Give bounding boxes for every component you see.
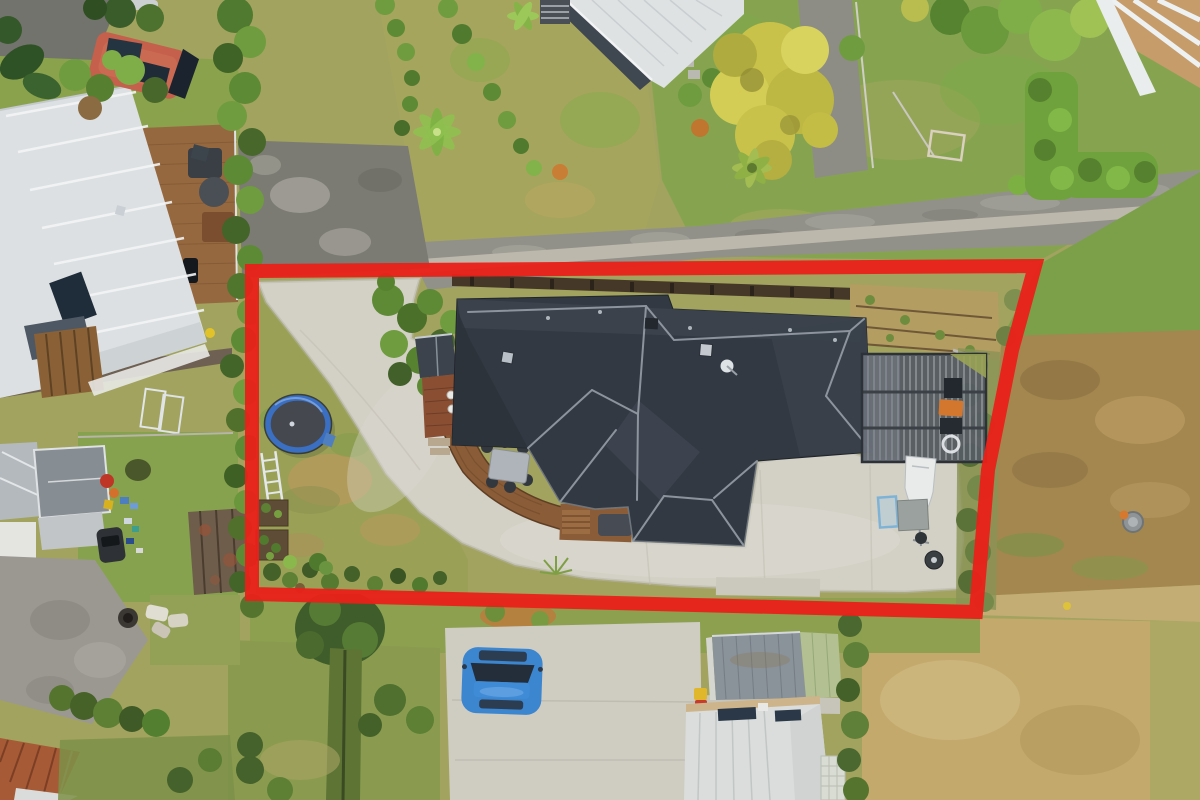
chimney <box>645 318 659 330</box>
outdoor-seat <box>167 613 188 628</box>
skylight <box>699 343 712 356</box>
stairs <box>540 0 570 24</box>
grey-box <box>897 499 929 531</box>
orange-shrub <box>552 164 568 180</box>
shed-green-panel <box>800 632 842 698</box>
paved-steps <box>716 577 820 597</box>
blue-frame <box>878 496 898 527</box>
yellow-object <box>1063 602 1071 610</box>
storage-item <box>944 378 962 398</box>
tree-fern <box>413 108 461 156</box>
carport-pergola <box>862 354 986 462</box>
skylight <box>501 351 514 364</box>
subject-property <box>256 273 1026 612</box>
orange-shrub <box>691 119 709 137</box>
aerial-photo <box>0 0 1200 800</box>
solar-panel <box>718 707 757 721</box>
blue-hatchback <box>460 647 543 716</box>
outdoor-sofa <box>598 514 632 536</box>
orange-item <box>938 399 963 417</box>
bin <box>940 418 962 434</box>
toy-yellow <box>694 688 707 700</box>
red-bin <box>100 474 114 488</box>
solar-panel <box>775 709 802 721</box>
aerial-photo-canvas <box>0 0 1200 800</box>
orange-toy <box>1120 511 1129 520</box>
south-garage-shed <box>706 632 842 700</box>
south-white-building <box>684 696 830 800</box>
glass-table <box>488 449 530 484</box>
dark-car <box>96 526 126 563</box>
patio-umbrella <box>199 177 229 207</box>
